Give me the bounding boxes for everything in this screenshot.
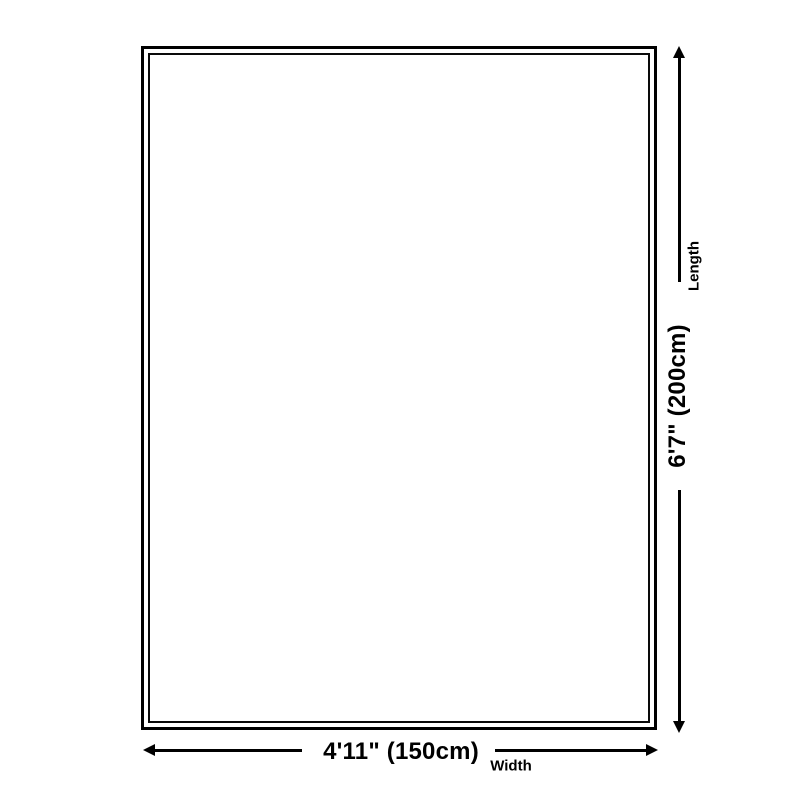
length-axis-label: Length [686, 241, 703, 291]
width-dimension-line-left [154, 749, 302, 752]
width-axis-label: Width [490, 758, 532, 775]
product-outline-inner-border [148, 53, 650, 723]
arrow-down-icon [673, 721, 685, 733]
width-value-label: 4'11" (150cm) [323, 738, 479, 766]
arrow-right-icon [646, 744, 658, 756]
length-value-label: 6'7" (200cm) [664, 324, 692, 468]
length-dimension-line-bottom [678, 490, 681, 722]
length-dimension-line-top [678, 57, 681, 282]
width-dimension-line-right [495, 749, 646, 752]
dimension-diagram: Length 6'7" (200cm) 4'11" (150cm) Width [0, 0, 800, 800]
product-outline-rectangle [141, 46, 657, 730]
